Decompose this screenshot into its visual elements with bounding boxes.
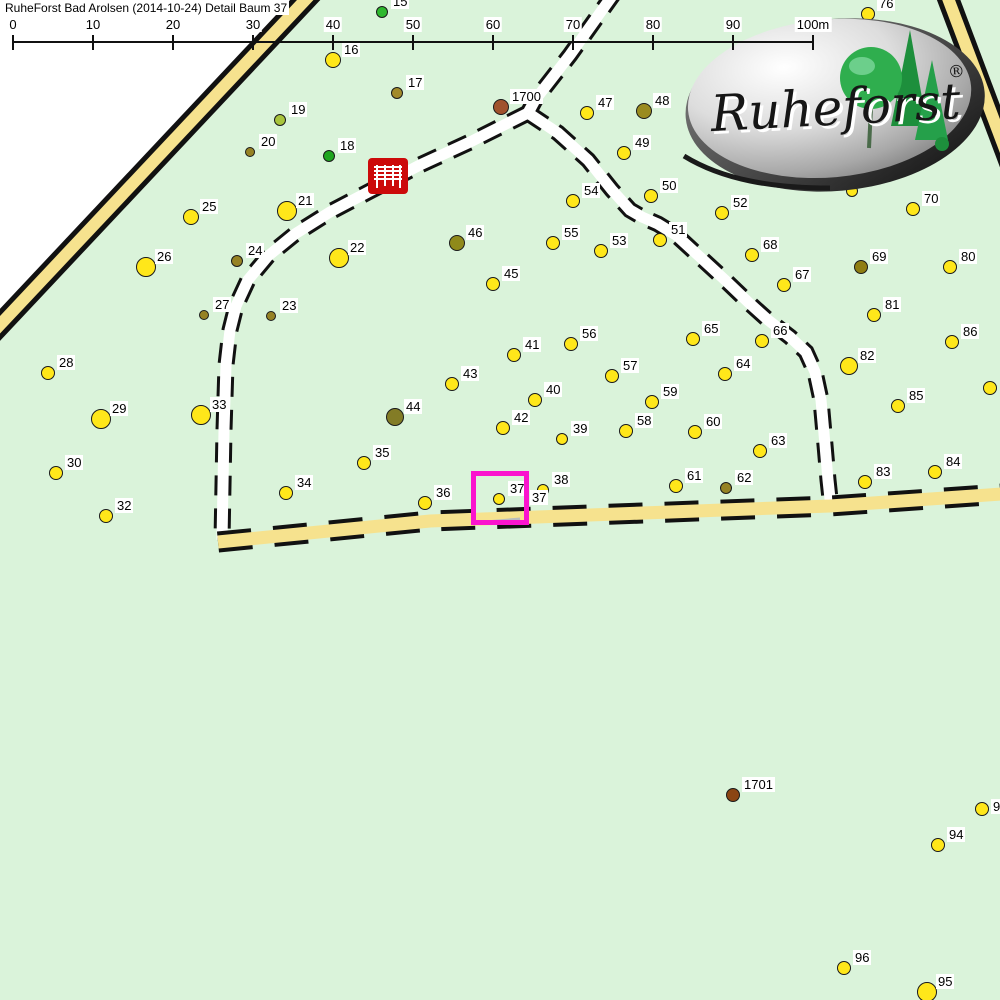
tree-marker-18[interactable]	[323, 150, 335, 162]
tree-marker-55[interactable]	[546, 236, 560, 250]
tree-marker-64[interactable]	[718, 367, 732, 381]
tree-label-53: 53	[610, 233, 628, 248]
tree-label-48: 48	[653, 93, 671, 108]
tree-marker-62[interactable]	[720, 482, 732, 494]
tree-label-32: 32	[115, 498, 133, 513]
tree-label-30: 30	[65, 455, 83, 470]
tree-label-39: 39	[571, 421, 589, 436]
tree-label-82: 82	[858, 348, 876, 363]
tree-marker-1700[interactable]	[493, 99, 509, 115]
tree-label-16: 16	[342, 42, 360, 57]
tree-marker-17[interactable]	[391, 87, 403, 99]
tree-marker-85[interactable]	[891, 399, 905, 413]
tree-label-84: 84	[944, 454, 962, 469]
tree-marker-81[interactable]	[867, 308, 881, 322]
map-title: RuheForst Bad Arolsen (2014-10-24) Detai…	[3, 1, 289, 15]
tree-marker[interactable]	[983, 381, 997, 395]
tree-label-26: 26	[155, 249, 173, 264]
tree-marker-57[interactable]	[605, 369, 619, 383]
tree-marker-33[interactable]	[191, 405, 211, 425]
tree-marker-25[interactable]	[183, 209, 199, 225]
tree-marker-1701[interactable]	[726, 788, 740, 802]
tree-label-15: 15	[391, 0, 409, 9]
tree-label-94: 94	[947, 827, 965, 842]
tree-label-43: 43	[461, 366, 479, 381]
bench-icon	[368, 158, 408, 194]
tree-label-60: 60	[704, 414, 722, 429]
tree-marker-82[interactable]	[840, 357, 858, 375]
tree-marker-23[interactable]	[266, 311, 276, 321]
tree-label-33: 33	[210, 397, 228, 412]
tree-label-55: 55	[562, 225, 580, 240]
tree-label-17: 17	[406, 75, 424, 90]
tree-label-56: 56	[580, 326, 598, 341]
tree-label-23: 23	[280, 298, 298, 313]
tree-label-19: 19	[289, 102, 307, 117]
tree-marker-20[interactable]	[245, 147, 255, 157]
tree-label-51: 51	[669, 222, 687, 237]
tree-label-86: 86	[961, 324, 979, 339]
tree-label-21: 21	[296, 193, 314, 208]
logo-registered-mark: ®	[947, 62, 965, 83]
tree-label-36: 36	[434, 485, 452, 500]
tree-marker-16[interactable]	[325, 52, 341, 68]
tree-label-18: 18	[338, 138, 356, 153]
tree-label-27: 27	[213, 297, 231, 312]
tree-label-extra-37: 37	[530, 490, 548, 505]
tree-label-58: 58	[635, 413, 653, 428]
tree-label-67: 67	[793, 267, 811, 282]
tree-label-45: 45	[502, 266, 520, 281]
tree-marker-69[interactable]	[854, 260, 868, 274]
tree-label-24: 24	[246, 243, 264, 258]
tree-marker-56[interactable]	[564, 337, 578, 351]
tree-label-61: 61	[685, 468, 703, 483]
tree-label-extra-9: 9	[991, 799, 1000, 814]
tree-label-1700: 1700	[510, 89, 543, 104]
tree-marker-49[interactable]	[617, 146, 631, 160]
tree-label-81: 81	[883, 297, 901, 312]
tree-marker-26[interactable]	[136, 257, 156, 277]
tree-marker-65[interactable]	[686, 332, 700, 346]
tree-label-47: 47	[596, 95, 614, 110]
tree-marker-68[interactable]	[745, 248, 759, 262]
tree-marker-61[interactable]	[669, 479, 683, 493]
tree-marker-30[interactable]	[49, 466, 63, 480]
tree-label-66: 66	[771, 323, 789, 338]
tree-marker-53[interactable]	[594, 244, 608, 258]
tree-marker-34[interactable]	[279, 486, 293, 500]
bench-glyph	[368, 158, 408, 194]
tree-label-62: 62	[735, 470, 753, 485]
tree-label-85: 85	[907, 388, 925, 403]
tree-marker-42[interactable]	[496, 421, 510, 435]
tree-marker-45[interactable]	[486, 277, 500, 291]
tree-label-95: 95	[936, 974, 954, 989]
tree-label-29: 29	[110, 401, 128, 416]
ruheforst-logo-graphic: Ruheforst Ruheforst ®	[678, 6, 990, 194]
tree-marker-39[interactable]	[556, 433, 568, 445]
tree-label-57: 57	[621, 358, 639, 373]
tree-label-80: 80	[959, 249, 977, 264]
tree-marker-35[interactable]	[357, 456, 371, 470]
tree-marker-51[interactable]	[653, 233, 667, 247]
tree-label-44: 44	[404, 399, 422, 414]
tree-marker-22[interactable]	[329, 248, 349, 268]
tree-marker-84[interactable]	[928, 465, 942, 479]
tree-marker-36[interactable]	[418, 496, 432, 510]
tree-marker-52[interactable]	[715, 206, 729, 220]
tree-marker-59[interactable]	[645, 395, 659, 409]
tree-label-38: 38	[552, 472, 570, 487]
tree-label-69: 69	[870, 249, 888, 264]
tree-marker-67[interactable]	[777, 278, 791, 292]
ruheforst-logo: Ruheforst Ruheforst ®	[678, 6, 990, 194]
tree-label-28: 28	[57, 355, 75, 370]
tree-label-83: 83	[874, 464, 892, 479]
tree-marker-54[interactable]	[566, 194, 580, 208]
tree-marker-41[interactable]	[507, 348, 521, 362]
tree-label-1701: 1701	[742, 777, 775, 792]
forest-map: 1516171819202122232425262728293032333435…	[0, 0, 1000, 1000]
tree-marker-21[interactable]	[277, 201, 297, 221]
tree-label-64: 64	[734, 356, 752, 371]
tree-label-35: 35	[373, 445, 391, 460]
selected-tree-highlight-box	[471, 471, 529, 525]
tree-label-65: 65	[702, 321, 720, 336]
tree-marker-63[interactable]	[753, 444, 767, 458]
tree-marker-40[interactable]	[528, 393, 542, 407]
tree-label-63: 63	[769, 433, 787, 448]
tree-label-68: 68	[761, 237, 779, 252]
tree-marker[interactable]	[975, 802, 989, 816]
tree-label-50: 50	[660, 178, 678, 193]
tree-label-25: 25	[200, 199, 218, 214]
tree-marker-32[interactable]	[99, 509, 113, 523]
tree-marker-44[interactable]	[386, 408, 404, 426]
tree-marker-27[interactable]	[199, 310, 209, 320]
tree-label-42: 42	[512, 410, 530, 425]
tree-label-41: 41	[523, 337, 541, 352]
tree-label-20: 20	[259, 134, 277, 149]
tree-marker-47[interactable]	[580, 106, 594, 120]
tree-marker-94[interactable]	[931, 838, 945, 852]
tree-label-40: 40	[544, 382, 562, 397]
tree-marker-83[interactable]	[858, 475, 872, 489]
tree-label-34: 34	[295, 475, 313, 490]
tree-label-54: 54	[582, 183, 600, 198]
tree-marker-86[interactable]	[945, 335, 959, 349]
tree-label-22: 22	[348, 240, 366, 255]
tree-marker-96[interactable]	[837, 961, 851, 975]
tree-marker-19[interactable]	[274, 114, 286, 126]
tree-marker-43[interactable]	[445, 377, 459, 391]
tree-marker-95[interactable]	[917, 982, 937, 1000]
tree-marker-58[interactable]	[619, 424, 633, 438]
tree-label-49: 49	[633, 135, 651, 150]
tree-marker-46[interactable]	[449, 235, 465, 251]
tree-marker-50[interactable]	[644, 189, 658, 203]
tree-marker-29[interactable]	[91, 409, 111, 429]
tree-marker-48[interactable]	[636, 103, 652, 119]
tree-label-46: 46	[466, 225, 484, 240]
tree-marker-60[interactable]	[688, 425, 702, 439]
tree-label-59: 59	[661, 384, 679, 399]
tree-marker-80[interactable]	[943, 260, 957, 274]
tree-marker-70[interactable]	[906, 202, 920, 216]
tree-marker-28[interactable]	[41, 366, 55, 380]
tree-marker-24[interactable]	[231, 255, 243, 267]
tree-marker-66[interactable]	[755, 334, 769, 348]
tree-label-96: 96	[853, 950, 871, 965]
tree-marker-15[interactable]	[376, 6, 388, 18]
tree-label-52: 52	[731, 195, 749, 210]
